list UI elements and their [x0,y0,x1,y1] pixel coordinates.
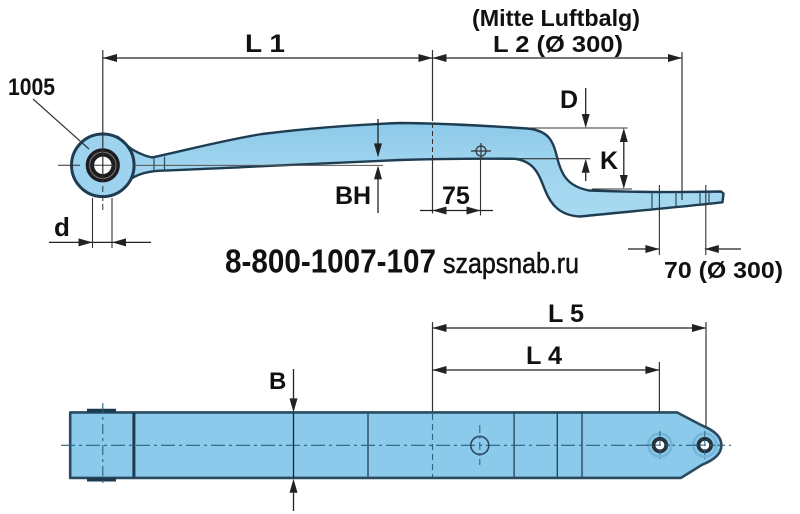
svg-text:75: 75 [442,182,470,210]
svg-text:d: d [54,212,70,242]
svg-text:1005: 1005 [8,74,55,101]
svg-text:70 (Ø 300): 70 (Ø 300) [664,257,783,283]
svg-text:B: B [269,368,286,395]
svg-text:(Mitte Luftbalg): (Mitte Luftbalg) [472,5,640,31]
svg-text:BH: BH [335,182,371,210]
svg-text:L 4: L 4 [526,342,562,370]
svg-text:K: K [600,147,618,175]
svg-text:L 1: L 1 [245,30,285,58]
svg-text:szapsnab.ru: szapsnab.ru [443,248,579,280]
svg-text:L 2 (Ø 300): L 2 (Ø 300) [493,31,623,57]
svg-text:8-800-1007-107: 8-800-1007-107 [225,244,436,281]
svg-text:L 5: L 5 [548,300,584,328]
svg-text:D: D [560,86,578,114]
